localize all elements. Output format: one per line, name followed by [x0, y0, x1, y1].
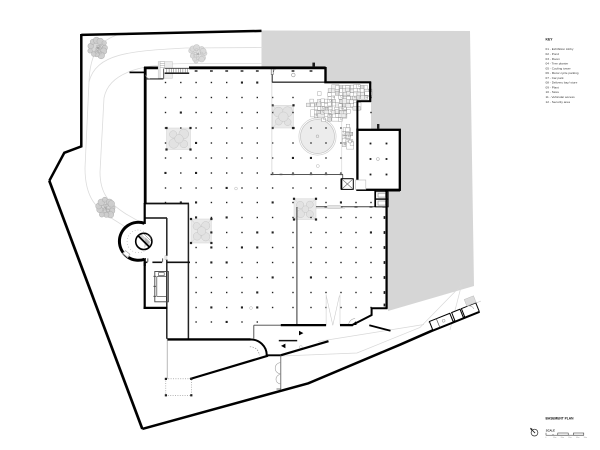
- svg-text:20m: 20m: [561, 437, 565, 439]
- svg-text:10 - Store: 10 - Store: [546, 90, 560, 94]
- svg-text:KEY: KEY: [546, 38, 554, 42]
- svg-text:06 - Motor cycle parking: 06 - Motor cycle parking: [546, 71, 579, 75]
- svg-text:40m: 40m: [576, 437, 580, 439]
- svg-text:02 - Pond: 02 - Pond: [546, 52, 560, 56]
- svg-text:30m: 30m: [568, 437, 572, 439]
- svg-text:08 - Delivery bay/ store: 08 - Delivery bay/ store: [546, 81, 578, 85]
- svg-text:05 - Cooling tower: 05 - Cooling tower: [546, 66, 571, 70]
- svg-text:12 - Security area: 12 - Security area: [546, 100, 571, 104]
- svg-text:0: 0: [545, 437, 546, 439]
- svg-text:04 - Tree planter: 04 - Tree planter: [546, 62, 569, 66]
- svg-text:11 - Vehicular access: 11 - Vehicular access: [546, 95, 576, 99]
- svg-text:50m: 50m: [584, 437, 588, 439]
- svg-text:07 - Car park: 07 - Car park: [546, 76, 565, 80]
- svg-text:10m: 10m: [553, 437, 557, 439]
- svg-text:03 - Room: 03 - Room: [546, 57, 561, 61]
- svg-text:09 - Plant: 09 - Plant: [546, 85, 559, 89]
- svg-text:01 - Exhibition lobby: 01 - Exhibition lobby: [546, 47, 574, 51]
- svg-text:BASEMENT PLAN: BASEMENT PLAN: [546, 417, 575, 421]
- svg-text:SCALE: SCALE: [546, 429, 555, 433]
